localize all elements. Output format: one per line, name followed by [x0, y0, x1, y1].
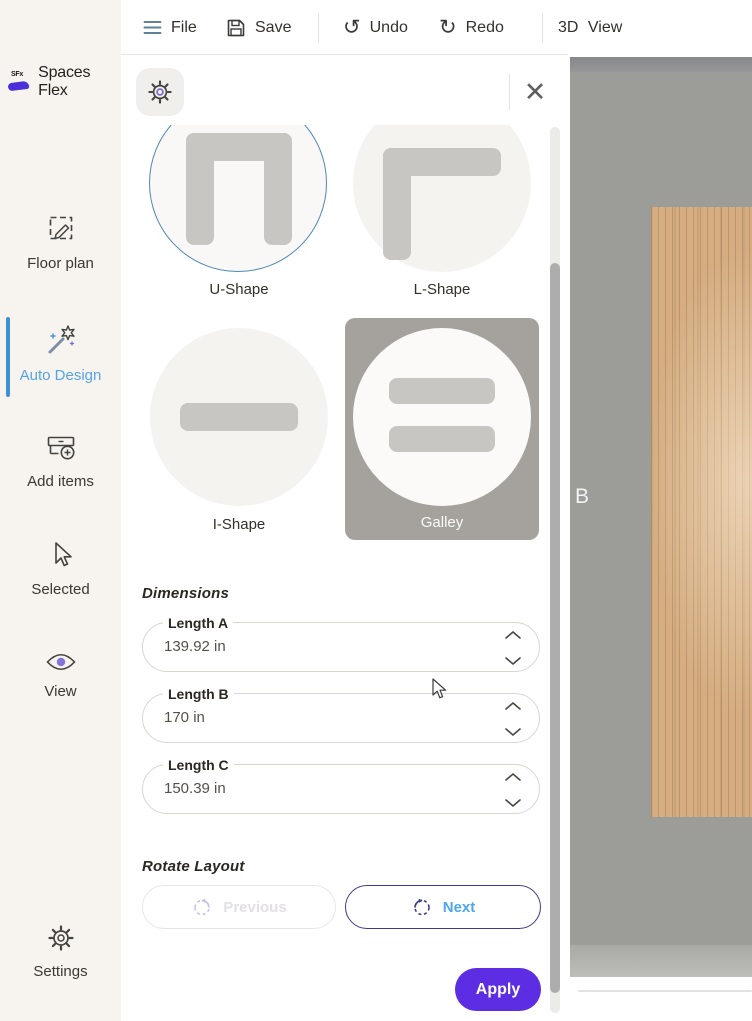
undo-icon: ↺ — [343, 17, 361, 38]
sidebar-item-view[interactable]: View — [0, 652, 121, 700]
sidebar-item-label: Selected — [31, 582, 89, 598]
redo-button[interactable]: ↻ Redo — [439, 0, 504, 55]
wall-label-b: B — [575, 485, 589, 509]
sidebar: SFx Spaces Flex Floor plan Auto Design — [0, 0, 121, 1021]
panel-scroll-area: U-Shape L-Shape I-Shape Galley Dimension… — [121, 125, 568, 1021]
brand-name: Spaces Flex — [38, 64, 121, 100]
magic-wand-icon — [44, 322, 78, 356]
gear-icon — [47, 924, 75, 952]
shape-option-l-shape[interactable] — [353, 125, 531, 272]
shape-option-galley[interactable]: Galley — [345, 318, 539, 540]
i-shape-glyph — [180, 403, 298, 431]
length-c-stepper[interactable] — [503, 772, 523, 808]
l-shape-glyph — [383, 148, 411, 260]
sidebar-item-label: Settings — [33, 964, 87, 980]
galley-glyph — [389, 378, 495, 404]
view-3d-button[interactable]: 3D View — [558, 0, 622, 55]
galley-glyph — [389, 426, 495, 452]
sidebar-item-label: Auto Design — [20, 368, 102, 384]
eye-icon — [45, 652, 77, 672]
shape-label-i-shape: I-Shape — [150, 516, 328, 533]
length-a-field[interactable]: Length A 139.92 in — [142, 622, 540, 672]
bottom-right-strip — [568, 977, 752, 1021]
apply-button[interactable]: Apply — [455, 968, 541, 1011]
length-a-stepper[interactable] — [503, 630, 523, 666]
chevron-up-icon[interactable] — [504, 701, 522, 711]
u-shape-glyph — [186, 133, 214, 245]
shape-option-u-shape[interactable] — [149, 125, 327, 272]
shape-label-l-shape: L-Shape — [353, 281, 531, 298]
view-3d-label: 3D View — [558, 19, 622, 37]
rotate-layout-heading: Rotate Layout — [142, 858, 245, 875]
chevron-down-icon[interactable] — [504, 798, 522, 808]
toolbar-divider — [318, 13, 319, 43]
shape-option-i-shape[interactable] — [150, 328, 328, 506]
toolbar-divider — [542, 13, 543, 43]
cursor-arrow-icon — [48, 540, 74, 570]
length-c-value: 150.39 in — [164, 765, 226, 813]
sidebar-item-floor-plan[interactable]: Floor plan — [0, 212, 121, 272]
rotate-previous-button[interactable]: Previous — [142, 885, 336, 929]
length-b-field[interactable]: Length B 170 in — [142, 693, 540, 743]
panel-settings-button[interactable] — [136, 68, 184, 116]
floor-plan-icon — [45, 212, 77, 244]
redo-label: Redo — [466, 19, 504, 37]
chevron-up-icon[interactable] — [504, 772, 522, 782]
panel-scrollbar-thumb[interactable] — [550, 263, 560, 993]
length-a-value: 139.92 in — [164, 623, 226, 671]
3d-view-canvas[interactable]: B — [570, 57, 752, 977]
bottom-divider-line — [578, 990, 752, 992]
save-button[interactable]: Save — [226, 0, 291, 55]
sidebar-item-label: View — [44, 684, 76, 700]
mouse-cursor-icon — [430, 678, 448, 702]
length-b-value: 170 in — [164, 694, 205, 742]
brand-logo: SFx Spaces Flex — [8, 64, 121, 100]
canvas-ceiling-edge — [570, 57, 752, 72]
length-c-field[interactable]: Length C 150.39 in — [142, 764, 540, 814]
chevron-up-icon[interactable] — [504, 630, 522, 640]
top-toolbar: File Save ↺ Undo ↻ Redo 3D View — [121, 0, 752, 55]
previous-label: Previous — [223, 899, 286, 916]
rotate-next-button[interactable]: Next — [345, 885, 541, 929]
sidebar-item-auto-design[interactable]: Auto Design — [0, 322, 121, 384]
save-label: Save — [255, 19, 291, 37]
shape-label-u-shape: U-Shape — [150, 281, 328, 298]
next-label: Next — [443, 899, 476, 916]
sidebar-item-label: Add items — [27, 474, 94, 490]
hamburger-icon — [143, 20, 162, 35]
dimensions-heading: Dimensions — [142, 585, 229, 602]
shape-label-galley: Galley — [345, 514, 539, 531]
undo-button[interactable]: ↺ Undo — [343, 0, 408, 55]
file-label: File — [171, 19, 197, 37]
save-icon — [226, 18, 246, 38]
canvas-floor-edge — [570, 945, 752, 977]
brand-badge-icon: SFx — [8, 71, 32, 93]
galley-circle — [353, 328, 531, 506]
file-menu-button[interactable]: File — [143, 0, 197, 55]
chevron-down-icon[interactable] — [504, 727, 522, 737]
brand-badge-text: SFx — [11, 71, 23, 78]
length-b-stepper[interactable] — [503, 701, 523, 737]
gear-icon — [147, 79, 173, 105]
sidebar-item-selected[interactable]: Selected — [0, 540, 121, 598]
brand-swoosh — [8, 81, 30, 91]
sidebar-item-label: Floor plan — [27, 256, 94, 272]
u-shape-glyph — [264, 133, 292, 245]
close-icon[interactable]: ✕ — [519, 76, 551, 108]
redo-icon: ↻ — [439, 17, 457, 38]
sidebar-item-settings[interactable]: Settings — [0, 924, 121, 980]
add-items-icon — [44, 430, 78, 462]
rotate-ccw-icon — [411, 896, 433, 918]
wood-wall-panel — [651, 207, 752, 817]
undo-label: Undo — [370, 19, 408, 37]
panel-header-divider — [509, 74, 510, 110]
auto-design-panel: ✕ U-Shape L-Shape I-Shape Galley Dimensi… — [121, 55, 568, 1021]
chevron-down-icon[interactable] — [504, 656, 522, 666]
sidebar-item-add-items[interactable]: Add items — [0, 430, 121, 490]
rotate-cw-icon — [191, 896, 213, 918]
